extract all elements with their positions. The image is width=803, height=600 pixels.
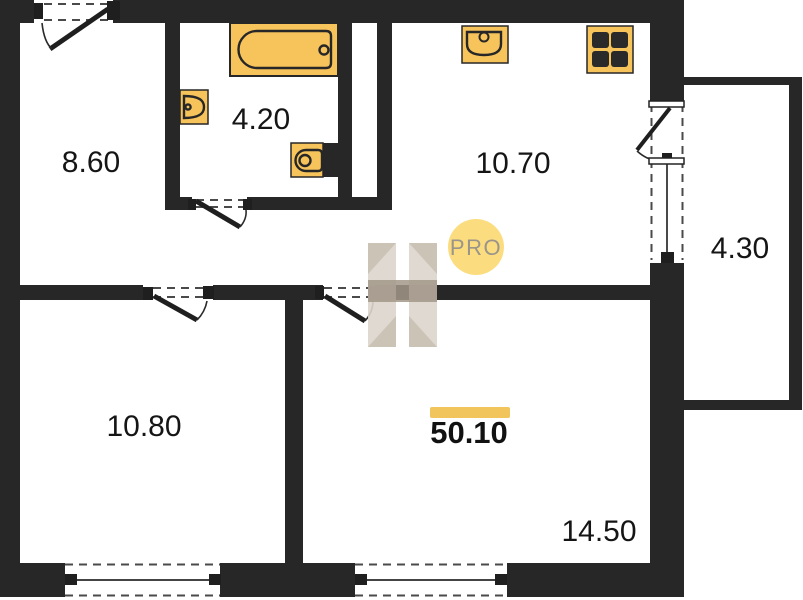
watermark-h-crossbar (368, 280, 437, 302)
room-area-label-bathroom: 4.20 (232, 103, 290, 137)
room-area-label-kitchen: 10.70 (475, 147, 550, 181)
total-area-label: 50.10 (430, 415, 508, 451)
watermark: PRO (0, 0, 803, 600)
room-area-label-bedroom: 10.80 (106, 410, 181, 444)
watermark-pro-text: PRO (450, 235, 502, 260)
room-area-label-living-room: 14.50 (561, 515, 636, 549)
room-area-label-balcony: 4.30 (711, 232, 769, 266)
floor-plan: PRO 8.60 4.20 10.70 4.30 10.80 14.50 50.… (0, 0, 803, 600)
watermark-pro-badge: PRO (448, 219, 504, 275)
room-area-label-hallway: 8.60 (62, 146, 120, 180)
watermark-h-logo-icon (368, 243, 437, 347)
